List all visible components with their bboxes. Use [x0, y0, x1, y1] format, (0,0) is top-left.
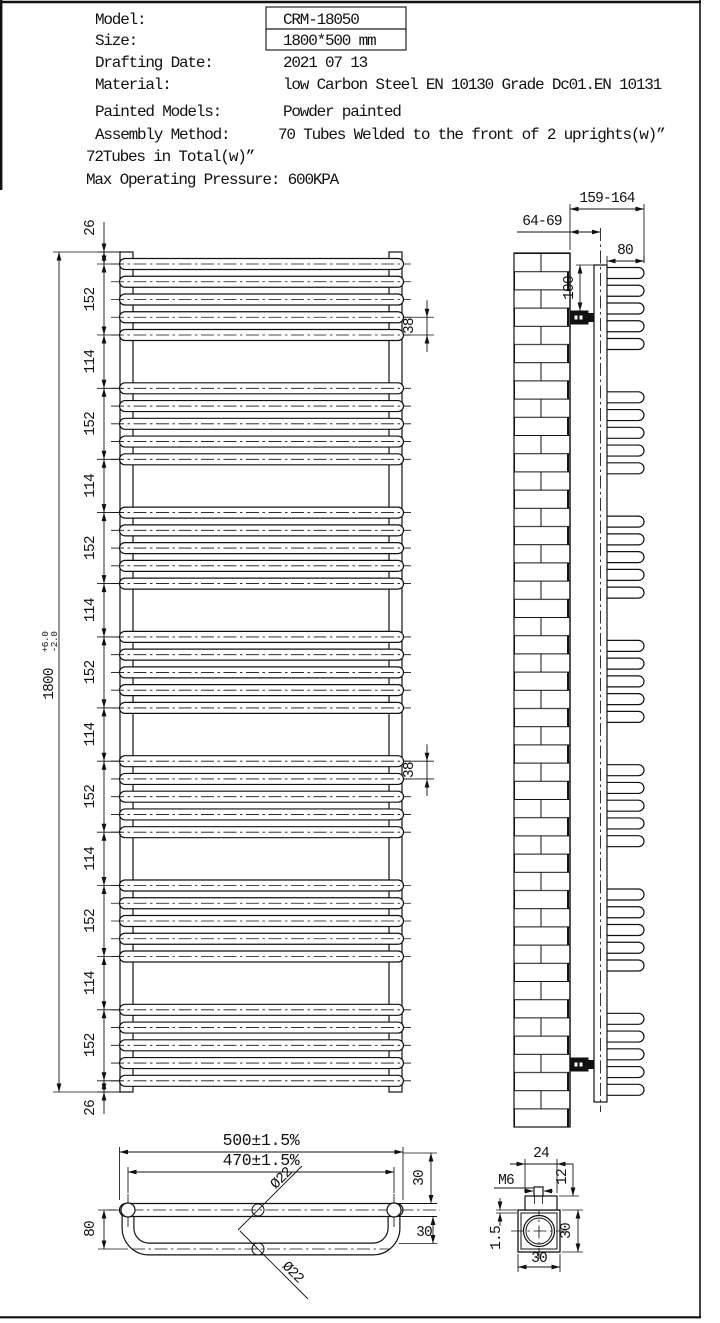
dim-arrow	[636, 207, 645, 212]
brick-wall	[514, 253, 570, 1127]
overall-depth-label: 159-164	[579, 191, 634, 207]
title-block: Model:CRM-18050Size:1800*500 mmDrafting …	[86, 7, 665, 189]
dim-arrow	[544, 1189, 553, 1194]
body-width-label: 30	[531, 1251, 547, 1267]
m6-stud	[534, 1187, 543, 1196]
tube-loop	[605, 534, 644, 545]
dim-arrow	[102, 335, 107, 344]
spec-value: Powder painted	[283, 103, 401, 121]
bracket-stud	[588, 314, 594, 322]
dim-arrow	[102, 459, 107, 468]
tube-loop	[605, 392, 644, 403]
spacing-dim-label: 38	[402, 762, 418, 778]
dim-arrow	[431, 1217, 436, 1226]
spec-extra: Max Operating Pressure: 600KPA	[86, 171, 340, 189]
dim-arrow	[429, 1195, 434, 1204]
chain-dim-label: 152	[83, 536, 99, 560]
spec-value: low Carbon Steel EN 10130 Grade Dc01.EN …	[283, 76, 662, 94]
dim-arrow	[525, 1189, 534, 1194]
spec-label: Size:	[95, 32, 137, 50]
chain-dim-label: 114	[83, 598, 99, 622]
dim-arrow	[498, 1213, 503, 1222]
tube-loop	[605, 516, 644, 527]
chain-dim-label: 152	[83, 288, 99, 312]
spec-value: 2021 07 13	[283, 54, 368, 72]
dim-arrow	[102, 1241, 107, 1250]
tube-loop	[605, 427, 644, 438]
chain-dim-label: 152	[83, 1033, 99, 1057]
centers-width-label: 470±1.5%	[223, 1151, 300, 1170]
dim-arrow	[102, 628, 107, 637]
dim-arrow	[425, 309, 430, 318]
chain-dim-label: 114	[83, 350, 99, 374]
tube-loop	[605, 907, 644, 918]
bracket-slot	[580, 1063, 583, 1067]
tube-loop	[605, 1013, 644, 1024]
dim-arrow	[518, 1265, 527, 1270]
dim-arrow	[425, 753, 430, 762]
tube-loop	[605, 1049, 644, 1060]
bracket-slot	[575, 316, 578, 320]
dim-arrow	[102, 1001, 107, 1010]
dim-arrow	[576, 1210, 581, 1219]
dim-arrow	[102, 832, 107, 841]
dim-arrow	[102, 699, 107, 708]
chain-dim-label: 114	[83, 474, 99, 498]
tube-loop	[605, 410, 644, 421]
dim-arrow	[102, 327, 107, 336]
dim-arrow	[102, 877, 107, 886]
dim-arrow	[571, 1188, 576, 1197]
dim-arrow	[386, 1170, 395, 1175]
dim-arrow	[102, 513, 107, 522]
dim-arrow	[395, 1150, 404, 1155]
dim-arrow	[557, 1162, 566, 1167]
chain-dim-label: 114	[83, 723, 99, 747]
tube-loop	[605, 569, 644, 580]
dim-arrow	[578, 265, 583, 274]
tube-loop	[605, 1067, 644, 1078]
dim-arrow	[102, 708, 107, 717]
upright-section-circle	[387, 1203, 401, 1217]
dim-arrow	[102, 948, 107, 957]
tube-loop	[605, 676, 644, 687]
thread-label: M6	[498, 1173, 514, 1189]
dim-arrow	[102, 504, 107, 513]
tube-loop	[605, 658, 644, 669]
tube-loop	[605, 925, 644, 936]
drawing-canvas: Model:CRM-18050Size:1800*500 mmDrafting …	[0, 0, 720, 1323]
dia-leader	[240, 1231, 308, 1299]
dim-arrow	[57, 1084, 62, 1093]
loop-depth-label: 80	[83, 1221, 99, 1237]
front-view: 2615211415211415211415211415211415211415…	[40, 220, 434, 1116]
dim-arrow	[102, 886, 107, 895]
dim-arrow	[607, 259, 616, 264]
dim-arrow	[425, 779, 430, 788]
chain-dim-label: 152	[83, 909, 99, 933]
wall-gap-label: 64-69	[522, 214, 562, 230]
chain-dim-label: 26	[83, 1100, 99, 1116]
dim-arrow	[592, 230, 601, 235]
dim-arrow	[102, 388, 107, 397]
dim-arrow	[102, 1210, 107, 1219]
chain-dim-label: 114	[83, 847, 99, 871]
bracket-detail-view: 2412M61.53030	[489, 1146, 583, 1272]
body-height-label: 30	[559, 1223, 575, 1239]
bracket-offset-label: 100	[562, 276, 578, 300]
dim-arrow	[425, 335, 430, 344]
dim-arrow	[429, 1153, 434, 1162]
dim-arrow	[102, 1092, 107, 1101]
tube-loop	[605, 321, 644, 332]
spec-label: Drafting Date:	[95, 54, 213, 72]
dim-arrow	[578, 303, 583, 312]
radiator-technical-drawing: Model:CRM-18050Size:1800*500 mmDrafting …	[0, 0, 720, 1323]
spec-label: Material:	[95, 76, 171, 94]
dim-arrow	[57, 252, 62, 261]
chain-dim-label: 26	[83, 220, 99, 236]
spec-value: 1800*500 mm	[283, 32, 376, 50]
dim-arrow	[102, 957, 107, 966]
dim-arrow	[498, 1202, 503, 1211]
bracket-plate	[525, 1196, 557, 1210]
dim-arrow	[576, 1244, 581, 1253]
tube-loop	[605, 552, 644, 563]
dim-arrow	[102, 753, 107, 762]
tube-depth-label: 80	[617, 243, 633, 259]
dim-arrow	[102, 584, 107, 593]
tube-loop	[605, 889, 644, 900]
spec-extra: 72Tubes in Total(w)”	[86, 148, 255, 166]
offset-rear-label: 30	[416, 1225, 432, 1241]
wall-thickness-label: 1.5	[489, 1226, 505, 1250]
dim-arrow	[517, 1162, 526, 1167]
overall-dim-label: 1800+6.0-2.0	[40, 631, 60, 700]
tube-loop	[605, 587, 644, 598]
dim-arrow	[570, 230, 579, 235]
dim-arrow	[102, 380, 107, 389]
tube-loop	[605, 836, 644, 847]
dim-arrow	[102, 244, 107, 253]
dim-arrow	[102, 451, 107, 460]
bracket-slot	[575, 1063, 578, 1067]
tube-loop	[605, 445, 644, 456]
dim-arrow	[102, 1010, 107, 1019]
dim-arrow	[102, 761, 107, 770]
spec-value: 70 Tubes Welded to the front of 2 uprigh…	[278, 126, 665, 144]
bracket-slot	[580, 316, 583, 320]
dim-arrow	[570, 207, 579, 212]
upright-section-circle	[121, 1203, 135, 1217]
dim-arrow	[128, 1170, 137, 1175]
tube-loop	[605, 782, 644, 793]
dim-arrow	[102, 264, 107, 273]
tube-loop	[605, 339, 644, 350]
tube-loop	[605, 765, 644, 776]
chain-dim-label: 152	[83, 660, 99, 684]
tube-loop	[605, 942, 644, 953]
dim-arrow	[102, 575, 107, 584]
tube-loop	[605, 640, 644, 651]
tube-loop	[605, 1031, 644, 1042]
dim-arrow	[636, 259, 645, 264]
side-view: 159-16464-6980100	[514, 191, 644, 1127]
tube-loop	[605, 285, 644, 296]
tube-loop	[605, 268, 644, 279]
spec-label: Painted Models:	[95, 103, 221, 121]
tube-loop	[605, 960, 644, 971]
chain-dim-label: 114	[83, 971, 99, 995]
overall-tol-minus: -2.0	[49, 631, 60, 653]
tube-loop	[605, 818, 644, 829]
tube-loop	[605, 711, 644, 722]
tube-loop	[605, 303, 644, 314]
overall-value: 1800	[42, 668, 58, 700]
chain-dim-label: 152	[83, 785, 99, 809]
dim-arrow	[552, 1265, 561, 1270]
offset-top-label: 30	[412, 1170, 428, 1186]
plate-height-label: 12	[555, 1169, 571, 1185]
chain-dim-label: 152	[83, 412, 99, 436]
spec-value: CRM-18050	[283, 11, 359, 29]
tube-loop	[605, 463, 644, 474]
spec-label: Assembly Method:	[95, 126, 229, 144]
dim-arrow	[120, 1150, 129, 1155]
tube-loop	[605, 800, 644, 811]
tube-loop	[605, 1084, 644, 1095]
dim-arrow	[102, 824, 107, 833]
spacing-dim-label: 38	[402, 318, 418, 334]
rear-dia-label: Ø22	[278, 1259, 306, 1287]
spec-label: Model:	[95, 11, 145, 29]
dim-arrow	[102, 1072, 107, 1081]
tube-loop	[605, 694, 644, 705]
bottom-view: Ø22Ø22500±1.5%470±1.5%803030	[83, 1131, 440, 1299]
overall-width-label: 500±1.5%	[223, 1131, 300, 1150]
plate-width-label: 24	[533, 1146, 549, 1162]
bracket-stud	[588, 1061, 594, 1069]
dim-arrow	[102, 637, 107, 646]
